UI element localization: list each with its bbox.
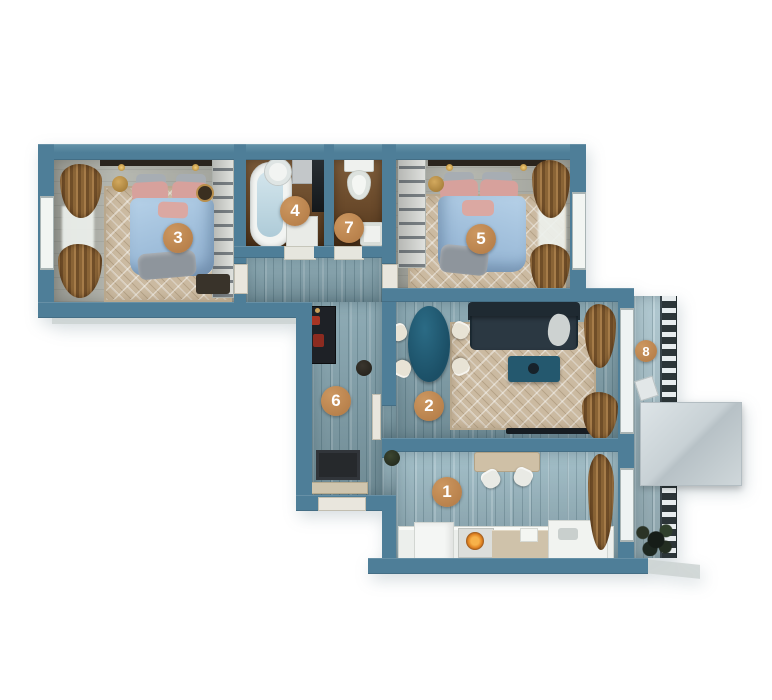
wall-bathroom-bottom-b: [314, 246, 334, 258]
balcony-plants: [634, 520, 674, 556]
hallway-entry-mat-light: [310, 482, 368, 494]
wall-hallway-left: [296, 302, 312, 511]
kitchen-sink-bowl: [558, 528, 578, 540]
hallway-console-decor-red2: [313, 334, 324, 347]
wall-bathroom-bottom-c: [362, 246, 382, 258]
entrance-door: [318, 497, 366, 511]
bedroom2-cushion: [462, 200, 494, 216]
bedroom1-sconce-left: [118, 164, 125, 171]
apartment-floor-plan: 1 2 3 4 5 6 7 8: [0, 0, 772, 700]
wall-bathroom-bottom-a: [234, 246, 284, 258]
bedroom2-nightstand-left: [428, 176, 444, 192]
bedroom1-window: [40, 196, 54, 270]
room-marker-kitchen: 1: [432, 477, 462, 507]
hallway-console-decor-gold: [315, 308, 320, 313]
bedroom1-slab-shadow: [52, 318, 308, 324]
dining-table: [408, 306, 450, 382]
kitchen-fridge: [414, 522, 454, 562]
bedroom2-sconce-left: [446, 164, 453, 171]
wall-kitchen-bottom: [368, 558, 648, 574]
hallway-entry-mat-dark: [316, 450, 360, 480]
bedroom2-sconce-right: [520, 164, 527, 171]
hallway-floor-upper: [246, 258, 382, 302]
living-room-door: [372, 394, 381, 440]
kitchen-stove-flame: [466, 532, 484, 550]
bedroom1-blanket: [137, 250, 197, 281]
wall-living-kitchen: [396, 438, 618, 452]
doorway-floor-living: [382, 406, 396, 438]
bedroom1-nightstand-right: [196, 184, 214, 202]
doorway-plant: [384, 450, 400, 466]
room-marker-bedroom-1: 3: [163, 223, 193, 253]
hallway-pouf: [356, 360, 372, 376]
bedroom1-sconce-right: [192, 164, 199, 171]
kitchen-window: [620, 468, 634, 542]
wall-bedroom1-right-lower: [234, 292, 246, 318]
wall-central-vertical-b: [382, 290, 396, 406]
wall-bathroom-toilet-divider: [324, 144, 334, 246]
room-marker-toilet: 7: [334, 213, 364, 243]
wall-bedroom2-bottom: [382, 288, 634, 302]
room-marker-bedroom-2: 5: [466, 224, 496, 254]
bedroom1-nightstand-left: [112, 176, 128, 192]
kitchen-wall-item: [520, 528, 538, 542]
wall-exterior-top: [38, 144, 586, 160]
bedroom2-wardrobe: [398, 154, 426, 268]
room-marker-bathroom: 4: [280, 196, 310, 226]
room-marker-living-room: 2: [414, 391, 444, 421]
room-marker-balcony: 8: [635, 340, 657, 362]
bathroom-sink: [264, 158, 292, 186]
floor-plan-canvas: 1 2 3 4 5 6 7 8: [0, 0, 772, 700]
hallway-console-decor-red: [311, 316, 320, 325]
bedroom1-door: [234, 264, 248, 294]
bathroom-door-threshold: [284, 246, 316, 260]
bedroom1-bench: [196, 274, 230, 294]
room-marker-hallway: 6: [321, 386, 351, 416]
bedroom1-cushion: [158, 201, 189, 218]
toilet-door-threshold: [334, 246, 364, 260]
tv-console: [506, 428, 594, 434]
wall-central-vertical-a: [382, 144, 396, 264]
coffee-table-bowl: [528, 363, 539, 374]
kitchen-table: [474, 452, 540, 472]
balcony-awning-roof: [640, 402, 742, 486]
bedroom2-window: [572, 192, 586, 270]
wall-bedroom1-bottom: [38, 302, 312, 318]
balcony-door-window: [620, 308, 634, 434]
